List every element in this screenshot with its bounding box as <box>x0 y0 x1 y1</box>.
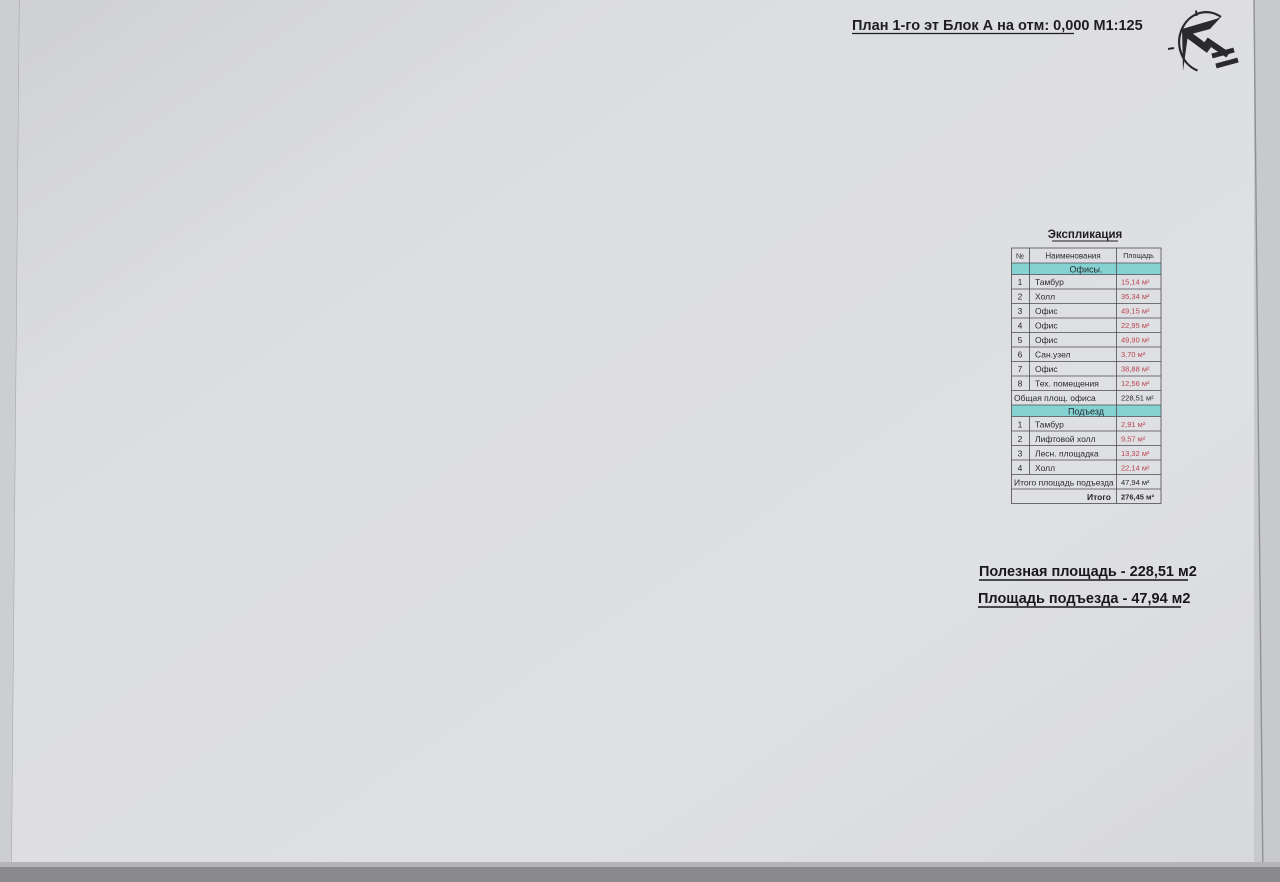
svg-text:Офис: Офис <box>1035 364 1058 374</box>
svg-text:Площадь подъезда - 47,94 м2: Площадь подъезда - 47,94 м2 <box>978 591 1190 607</box>
svg-text:4: 4 <box>1018 463 1023 473</box>
svg-text:Тех. помещения: Тех. помещения <box>1035 379 1099 389</box>
svg-text:1: 1 <box>1018 277 1023 287</box>
svg-text:276,45 м²: 276,45 м² <box>1121 493 1155 502</box>
svg-text:Лифтовой холл: Лифтовой холл <box>1035 434 1096 444</box>
svg-text:Итого: Итого <box>1087 492 1111 502</box>
svg-text:2: 2 <box>1018 434 1023 444</box>
svg-text:Экспликация: Экспликация <box>1048 229 1123 241</box>
svg-text:Площадь: Площадь <box>1123 253 1154 260</box>
svg-text:Тамбур: Тамбур <box>1035 277 1064 287</box>
svg-text:22,95 м²: 22,95 м² <box>1121 321 1150 330</box>
svg-text:35,34 м²: 35,34 м² <box>1121 292 1150 301</box>
svg-text:3: 3 <box>1018 306 1023 316</box>
svg-text:4: 4 <box>1018 321 1023 331</box>
svg-text:228,51 м²: 228,51 м² <box>1121 394 1154 403</box>
svg-text:Сан.узел: Сан.узел <box>1035 350 1071 360</box>
svg-text:5: 5 <box>1018 335 1023 345</box>
svg-text:Холл: Холл <box>1035 463 1055 473</box>
svg-text:Итого площадь подъезда: Итого площадь подъезда <box>1014 478 1114 488</box>
svg-text:49,90 м²: 49,90 м² <box>1121 336 1150 345</box>
svg-text:Офис: Офис <box>1035 335 1058 345</box>
svg-text:3,70 м²: 3,70 м² <box>1121 350 1146 359</box>
svg-text:1: 1 <box>1018 420 1023 430</box>
svg-text:2: 2 <box>1018 292 1023 302</box>
svg-text:Офисы.: Офисы. <box>1070 265 1103 275</box>
svg-text:13,32 м²: 13,32 м² <box>1121 449 1150 458</box>
svg-text:3: 3 <box>1018 449 1023 459</box>
svg-text:Наименования: Наименования <box>1045 252 1100 261</box>
svg-text:47,94 м²: 47,94 м² <box>1121 478 1150 487</box>
svg-text:Лесн. площадка: Лесн. площадка <box>1035 449 1099 459</box>
svg-text:9,57 м²: 9,57 м² <box>1121 435 1146 444</box>
svg-text:№: № <box>1016 252 1024 261</box>
svg-text:Офис: Офис <box>1035 321 1058 331</box>
svg-text:2,91 м²: 2,91 м² <box>1121 420 1146 429</box>
svg-text:6: 6 <box>1018 350 1023 360</box>
svg-text:Подъезд: Подъезд <box>1068 407 1105 417</box>
svg-text:План 1-го эт Блок А на отм: 0,: План 1-го эт Блок А на отм: 0,000 М1:125 <box>852 18 1143 34</box>
svg-text:12,56 м²: 12,56 м² <box>1121 379 1150 388</box>
svg-text:Офис: Офис <box>1035 306 1058 316</box>
svg-text:22,14 м²: 22,14 м² <box>1121 464 1150 473</box>
svg-text:Холл: Холл <box>1035 292 1055 302</box>
svg-text:49,15 м²: 49,15 м² <box>1121 307 1150 316</box>
svg-text:7: 7 <box>1018 364 1023 374</box>
svg-text:38,88 м²: 38,88 м² <box>1121 365 1150 374</box>
svg-text:15,14 м²: 15,14 м² <box>1121 278 1150 287</box>
svg-text:8: 8 <box>1018 379 1023 389</box>
svg-text:Тамбур: Тамбур <box>1035 420 1064 430</box>
svg-text:Общая площ. офиса: Общая площ. офиса <box>1014 393 1096 403</box>
svg-text:Полезная площадь - 228,51 м2: Полезная площадь - 228,51 м2 <box>979 564 1197 580</box>
